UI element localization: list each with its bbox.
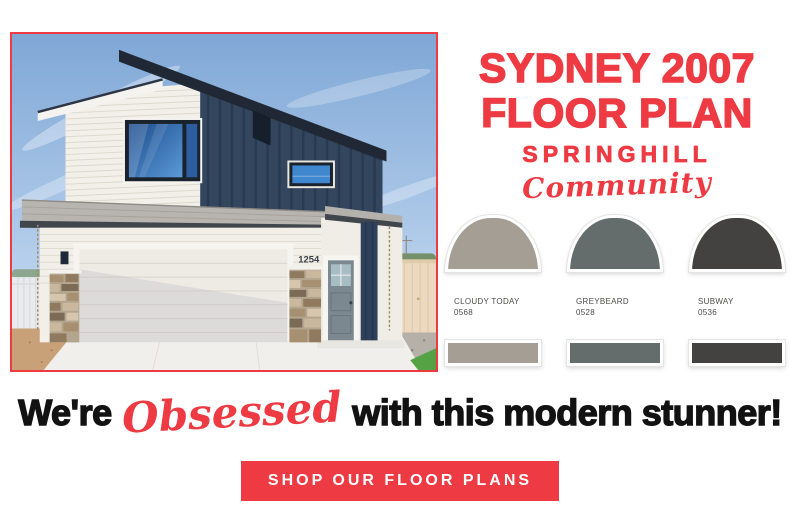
door-handle	[349, 301, 352, 304]
swatch-bar	[445, 340, 541, 366]
swatch-code: 0528	[576, 308, 663, 319]
swatch-label: SUBWAY 0536	[689, 297, 785, 319]
headline-prefix: We're	[18, 392, 111, 433]
title-community-script: Community	[442, 163, 793, 208]
swatch-arch	[445, 215, 541, 272]
headline-emphasis: Obsessed	[115, 382, 349, 443]
marketing-banner: 1254 SYDNEY 2007 FLOOR PLAN SPRINGHILL C…	[0, 0, 800, 511]
garage	[73, 244, 293, 343]
house-number: 1254	[298, 253, 320, 264]
headline-suffix: with this modern stunner!	[352, 392, 782, 433]
headline: We're Obsessed with this modern stunner!	[0, 386, 800, 435]
swatch-code: 0568	[454, 308, 541, 319]
sconce-light	[61, 251, 69, 264]
swatch-name: GREYBEARD	[576, 297, 663, 308]
entry-section	[317, 206, 404, 348]
front-door	[328, 260, 354, 340]
stone-column-left	[48, 270, 82, 342]
swatch-code: 0536	[698, 308, 785, 319]
swatch-name: SUBWAY	[698, 297, 785, 308]
swatch-bar	[689, 340, 785, 366]
house-illustration: 1254	[12, 34, 436, 370]
swatch-label: CLOUDY TODAY 0568	[445, 297, 541, 319]
cta-row: SHOP OUR FLOOR PLANS	[0, 461, 800, 501]
entry-step	[317, 340, 404, 348]
swatch-bar	[567, 340, 663, 366]
upper-small-window	[287, 160, 335, 188]
title-block: SYDNEY 2007 FLOOR PLAN SPRINGHILL Commun…	[442, 46, 792, 202]
swatch-arch	[689, 215, 785, 272]
house-photo: 1254	[10, 32, 438, 372]
entry-navy-pillar	[361, 222, 378, 343]
swatch-label: GREYBEARD 0528	[567, 297, 663, 319]
shop-floor-plans-button[interactable]: SHOP OUR FLOOR PLANS	[241, 461, 559, 501]
title-line-2: FLOOR PLAN	[442, 91, 792, 136]
swatch-subway: SUBWAY 0536	[689, 215, 785, 366]
title-line-1: SYDNEY 2007	[442, 46, 792, 91]
upper-large-window	[123, 118, 202, 183]
paint-swatches: CLOUDY TODAY 0568 GREYBEARD 0528 SUBWAY …	[445, 215, 785, 366]
swatch-greybeard: GREYBEARD 0528	[567, 215, 663, 366]
stone-column-right	[287, 266, 323, 342]
swatch-arch	[567, 215, 663, 272]
swatch-name: CLOUDY TODAY	[454, 297, 541, 308]
swatch-cloudy-today: CLOUDY TODAY 0568	[445, 215, 541, 366]
